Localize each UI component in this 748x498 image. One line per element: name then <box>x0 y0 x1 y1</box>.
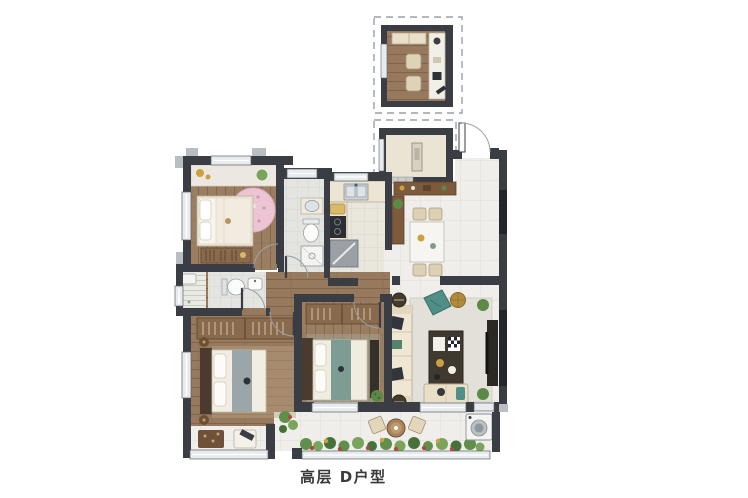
bay-rug <box>198 430 224 448</box>
window <box>379 139 384 171</box>
window-dark <box>499 310 507 386</box>
monitor <box>433 72 442 80</box>
desk-lamp <box>434 38 441 45</box>
lamp <box>240 252 246 258</box>
plan-caption: 高层 D户型 <box>300 466 387 487</box>
headboard <box>200 348 212 414</box>
floor-plan-page: 高层 D户型 <box>0 0 748 498</box>
teddy <box>225 218 231 224</box>
headboard <box>302 338 313 400</box>
plant <box>477 388 489 400</box>
living-room <box>388 290 498 409</box>
pillow <box>214 354 226 378</box>
tv-console <box>487 320 498 386</box>
sofa-pillow <box>390 316 404 330</box>
toilet-tank <box>222 279 227 295</box>
window <box>381 44 387 78</box>
sofa-pillow <box>390 367 404 381</box>
foot-cabinet <box>370 340 379 398</box>
plant <box>371 390 383 402</box>
pillow <box>214 382 226 406</box>
entry-door <box>459 123 490 152</box>
dining-chair <box>429 208 442 220</box>
plant <box>393 199 403 209</box>
wardrobe <box>306 304 380 324</box>
chair <box>406 54 421 69</box>
dining-chair <box>429 264 442 276</box>
window-dark <box>499 190 507 234</box>
pillow <box>200 222 211 240</box>
dining-table <box>410 222 444 262</box>
washbasin <box>248 278 262 290</box>
plant <box>477 299 489 311</box>
toilet-tank <box>303 219 319 224</box>
chair <box>406 76 421 91</box>
bedroom-center <box>302 304 383 404</box>
pillow <box>315 344 326 366</box>
dining-chair <box>413 264 426 276</box>
dining-floor <box>392 184 499 276</box>
pillow <box>200 200 211 220</box>
floor-plan-image <box>0 0 748 498</box>
washbasin <box>305 201 319 212</box>
plant <box>256 169 268 181</box>
sofa-pillow <box>392 340 402 349</box>
dining-chair <box>413 208 426 220</box>
balcony-door <box>474 403 494 411</box>
toilet <box>304 224 319 242</box>
pillow <box>315 370 326 392</box>
optional-room-top <box>374 17 462 113</box>
daybed-pillow <box>456 387 465 400</box>
shower-fixture <box>182 274 196 284</box>
cutting-board <box>330 204 345 214</box>
